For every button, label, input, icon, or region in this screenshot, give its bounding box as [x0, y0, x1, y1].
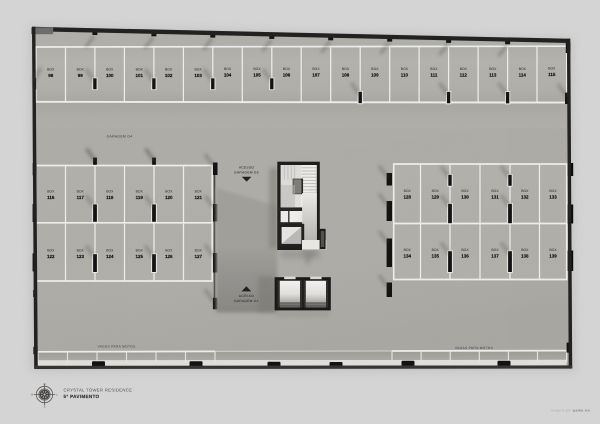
svg-text:imagem por paleo.rio: imagem por paleo.rio — [551, 409, 590, 413]
svg-text:S: S — [44, 405, 46, 408]
svg-text:N: N — [44, 383, 46, 386]
svg-text:L: L — [56, 394, 58, 397]
svg-text:CRYSTAL TOWER RESIDENCE: CRYSTAL TOWER RESIDENCE — [64, 388, 133, 393]
svg-text:O: O — [31, 394, 33, 397]
svg-text:5° PAVIMENTO: 5° PAVIMENTO — [64, 394, 100, 399]
